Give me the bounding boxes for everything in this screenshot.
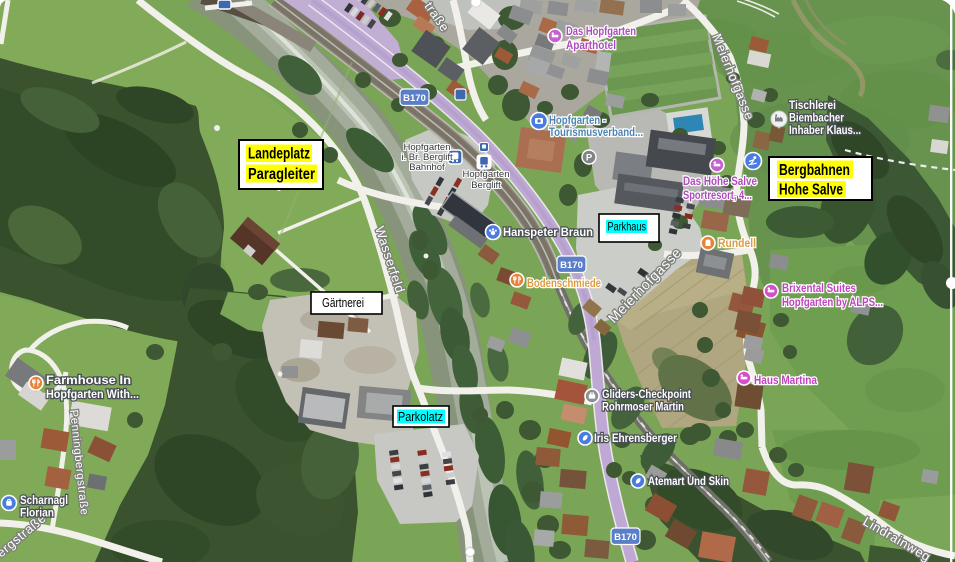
svg-text:Atemart Und Skin: Atemart Und Skin (648, 476, 729, 488)
svg-text:Das Höhe Salve: Das Höhe Salve (683, 176, 757, 188)
svg-text:Florian: Florian (20, 508, 54, 520)
svg-text:Hohe Salve: Hohe Salve (779, 182, 843, 199)
svg-text:Biembacher: Biembacher (789, 113, 844, 125)
svg-text:Scharnagl: Scharnagl (20, 495, 68, 507)
svg-text:Rundell: Rundell (718, 238, 756, 250)
svg-text:Parkhaus: Parkhaus (608, 220, 647, 234)
svg-text:Hopfgarten With...: Hopfgarten With... (46, 389, 139, 401)
svg-text:Sportresort, 4...: Sportresort, 4... (683, 190, 752, 202)
svg-text:Hopfgarten: Hopfgarten (462, 169, 509, 180)
svg-text:Parkolatz: Parkolatz (398, 410, 443, 424)
svg-text:Berglift: Berglift (471, 180, 501, 191)
svg-text:Bodenschmiede: Bodenschmiede (527, 278, 601, 290)
svg-text:Bergbahnen: Bergbahnen (779, 162, 850, 179)
svg-text:Rohrmoser Martin: Rohrmoser Martin (602, 402, 684, 414)
svg-text:Landeplatz: Landeplatz (248, 146, 310, 163)
svg-text:Hopfgarten by ALPS...: Hopfgarten by ALPS... (782, 297, 883, 309)
svg-text:Bahnhof: Bahnhof (409, 162, 445, 173)
svg-text:Paragleiter: Paragleiter (248, 166, 315, 183)
svg-text:Das Hopfgarten: Das Hopfgarten (566, 26, 636, 38)
svg-text:Gliders-Checkpoint: Gliders-Checkpoint (602, 389, 691, 401)
svg-text:Brixental Suites: Brixental Suites (782, 283, 856, 295)
svg-text:Iris Ehrensberger: Iris Ehrensberger (594, 433, 677, 445)
svg-text:B170: B170 (560, 260, 583, 271)
svg-text:Tischlerei: Tischlerei (789, 100, 836, 112)
svg-text:B170: B170 (614, 532, 637, 543)
svg-text:Haus Martina: Haus Martina (754, 375, 818, 387)
svg-text:Aparthotel: Aparthotel (566, 40, 616, 52)
svg-text:Hanspeter Braun: Hanspeter Braun (503, 227, 593, 239)
svg-text:Farmhouse In: Farmhouse In (46, 375, 131, 387)
svg-text:Hopfgarten -: Hopfgarten - (549, 115, 606, 127)
svg-text:Inhaber Klaus...: Inhaber Klaus... (789, 125, 861, 137)
svg-text:B170: B170 (403, 93, 426, 104)
svg-text:Gärtnerei: Gärtnerei (322, 296, 364, 310)
svg-text:Tourismusverband...: Tourismusverband... (549, 127, 643, 139)
svg-text:P: P (586, 152, 593, 163)
